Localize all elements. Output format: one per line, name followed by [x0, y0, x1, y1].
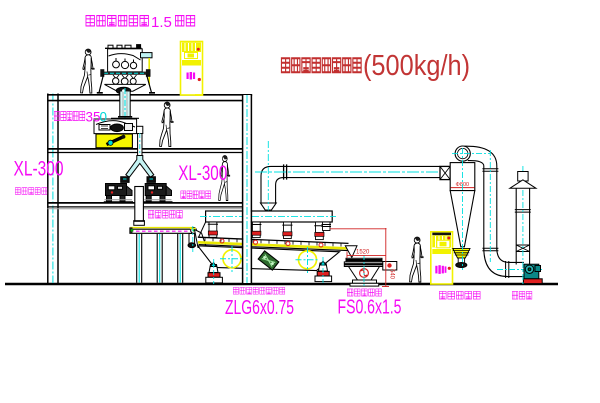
- svg-text:35: 35: [86, 110, 101, 125]
- svg-text:1.5: 1.5: [151, 14, 172, 31]
- svg-text:540: 540: [389, 269, 395, 280]
- svg-text:XL-300: XL-300: [14, 158, 64, 181]
- svg-text:ZLG6x0.75: ZLG6x0.75: [225, 297, 294, 319]
- svg-text:XL-300: XL-300: [178, 162, 227, 185]
- svg-text:1520: 1520: [356, 250, 370, 256]
- svg-text:(500kg/h): (500kg/h): [363, 50, 470, 82]
- svg-text:FS0.6x1.5: FS0.6x1.5: [338, 297, 402, 319]
- svg-text:0: 0: [100, 110, 108, 125]
